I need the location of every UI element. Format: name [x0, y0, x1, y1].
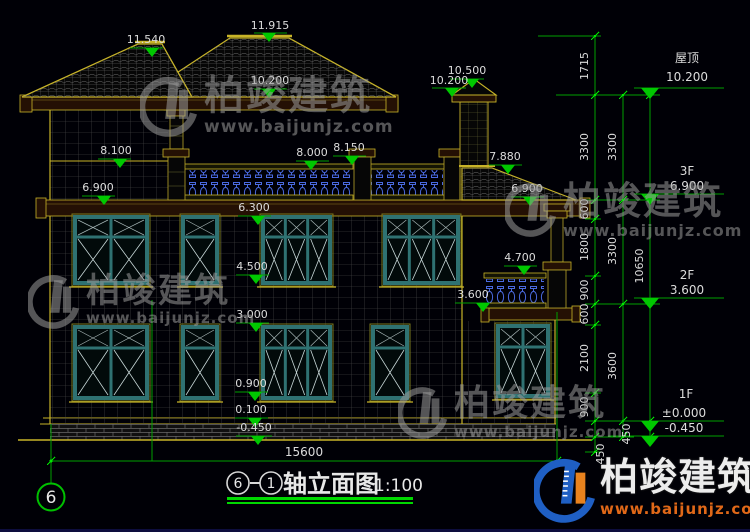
- dimension-chain-label: 450: [620, 424, 633, 445]
- elevation-marker-text: 0.100: [235, 403, 267, 416]
- dimension-chain-label: 600: [578, 199, 591, 220]
- window: [257, 214, 336, 287]
- dimension-chain-label: 1800: [578, 233, 591, 261]
- dimension-tick-dot: [622, 199, 624, 201]
- floor-elevation-value: -0.450: [665, 421, 704, 435]
- dimension-tick-dot: [594, 392, 596, 394]
- window: [177, 324, 223, 402]
- elevation-marker-text: 4.700: [504, 251, 536, 264]
- dimension-chain-label: 900: [578, 397, 591, 418]
- axis-bubble-label: 6: [46, 488, 57, 508]
- floor-label: 屋顶: [675, 51, 699, 65]
- window: [69, 324, 153, 402]
- house-elevation: [18, 36, 592, 440]
- elevation-marker-text: 6.900: [82, 181, 114, 194]
- floor-elevation-value: 6.900: [670, 179, 704, 193]
- floor-label: 1F: [679, 387, 694, 401]
- dimension-chain-label: 10650: [633, 249, 646, 284]
- elevation-marker-text: 10.200: [430, 74, 469, 87]
- floor-elevation-value: 3.600: [670, 283, 704, 297]
- terrace-balustrade: [183, 164, 445, 200]
- window: [177, 214, 223, 287]
- window: [69, 214, 153, 287]
- dimension-tick-dot: [594, 436, 596, 438]
- elevation-marker-text: 11.540: [127, 33, 166, 46]
- floor-level-triangle: [641, 436, 659, 447]
- elevation-marker-text: 4.500: [236, 260, 268, 273]
- dimension-chain-label: 3300: [606, 133, 619, 161]
- window: [367, 324, 413, 402]
- floor-label: 3F: [680, 164, 695, 178]
- dimension-tick-dot: [594, 324, 596, 326]
- dimension-tick-dot: [594, 94, 596, 96]
- overall-dimension-text: 15600: [285, 445, 323, 459]
- balcony-balustrade: [484, 273, 546, 308]
- dimension-chain-label: 900: [578, 280, 591, 301]
- elevation-marker-text: 8.150: [333, 141, 365, 154]
- window: [492, 323, 554, 400]
- dimension-tick-dot: [622, 303, 624, 305]
- title-axis-from: 6: [234, 476, 243, 492]
- cad-elevation-drawing: 11.54011.91510.2008.1008.0008.1506.9006.…: [0, 0, 750, 532]
- elevation-marker-text: 0.900: [235, 377, 267, 390]
- title-scale: 1:100: [374, 476, 423, 496]
- elevation-marker-text: 8.100: [100, 144, 132, 157]
- elevation-drawing-canvas: 11.54011.91510.2008.1008.0008.1506.9006.…: [0, 0, 750, 532]
- dimension-tick-dot: [594, 218, 596, 220]
- dimension-tick-dot: [594, 275, 596, 277]
- elevation-marker-text: 11.915: [251, 19, 290, 32]
- title-text: 轴立面图: [283, 470, 379, 498]
- title-underline: [227, 497, 413, 500]
- dimension-tick-dot: [594, 420, 596, 422]
- title-underline-2: [227, 502, 413, 504]
- dimension-chain-label: 1715: [578, 52, 591, 80]
- dimension-tick-dot: [594, 35, 596, 37]
- elevation-marker-text: -0.450: [236, 421, 271, 434]
- dimension-chain-labels: 1715330033006001800330010650900600210036…: [578, 52, 646, 465]
- window: [379, 214, 464, 287]
- floor-level-labels: 屋顶10.2003F6.9002F3.6001F±0.000-0.450: [608, 51, 724, 447]
- axis-bubble: 6: [38, 484, 65, 511]
- floor-elevation-value: ±0.000: [662, 406, 706, 420]
- dimension-tick-dot: [622, 94, 624, 96]
- dimension-tick-dot: [594, 303, 596, 305]
- dimension-chain-label: 450: [594, 444, 607, 465]
- dimension-chain-label: 2100: [578, 344, 591, 372]
- dimension-chain-label: 3600: [606, 352, 619, 380]
- title-axis-to: 1: [267, 476, 276, 492]
- elevation-marker-text: 3.000: [236, 308, 268, 321]
- floor-elevation-value: 10.200: [666, 70, 708, 84]
- elevation-marker-text: 3.600: [457, 288, 489, 301]
- elevation-marker-text: 6.900: [511, 182, 543, 195]
- floor-level-triangle: [641, 88, 659, 99]
- elevation-marker-text: 10.200: [251, 74, 290, 87]
- dimension-chain-label: 600: [578, 304, 591, 325]
- drawing-title: 6 1 轴立面图 1:100: [227, 470, 423, 504]
- floor-label: 2F: [680, 268, 695, 282]
- elevation-marker-text: 7.880: [489, 150, 521, 163]
- window: [257, 324, 336, 402]
- dimension-chain-label: 3300: [606, 237, 619, 265]
- left-roof: [22, 42, 192, 97]
- dimension-chain-label: 3300: [578, 133, 591, 161]
- dimension-tick-dot: [594, 199, 596, 201]
- floor-level-triangle: [641, 421, 659, 432]
- elevation-marker-text: 6.300: [238, 201, 270, 214]
- elevation-marker-text: 8.000: [296, 146, 328, 159]
